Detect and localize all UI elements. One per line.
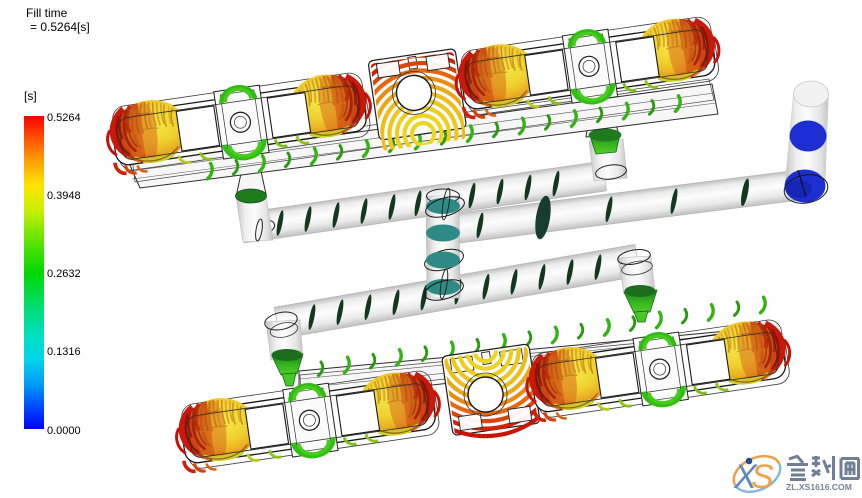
svg-text:0.1316: 0.1316 <box>47 346 81 358</box>
svg-text:[s]: [s] <box>24 89 37 103</box>
svg-text:= 0.5264[s]: = 0.5264[s] <box>30 20 90 34</box>
svg-text:Fill time: Fill time <box>26 6 68 20</box>
svg-text:0.3948: 0.3948 <box>47 190 81 202</box>
svg-text:0.0000: 0.0000 <box>47 425 81 437</box>
svg-text:ZL.XS1616.COM: ZL.XS1616.COM <box>786 482 852 492</box>
svg-text:0.2632: 0.2632 <box>47 268 81 280</box>
svg-text:0.5264: 0.5264 <box>47 112 81 124</box>
svg-text:S: S <box>751 458 774 496</box>
